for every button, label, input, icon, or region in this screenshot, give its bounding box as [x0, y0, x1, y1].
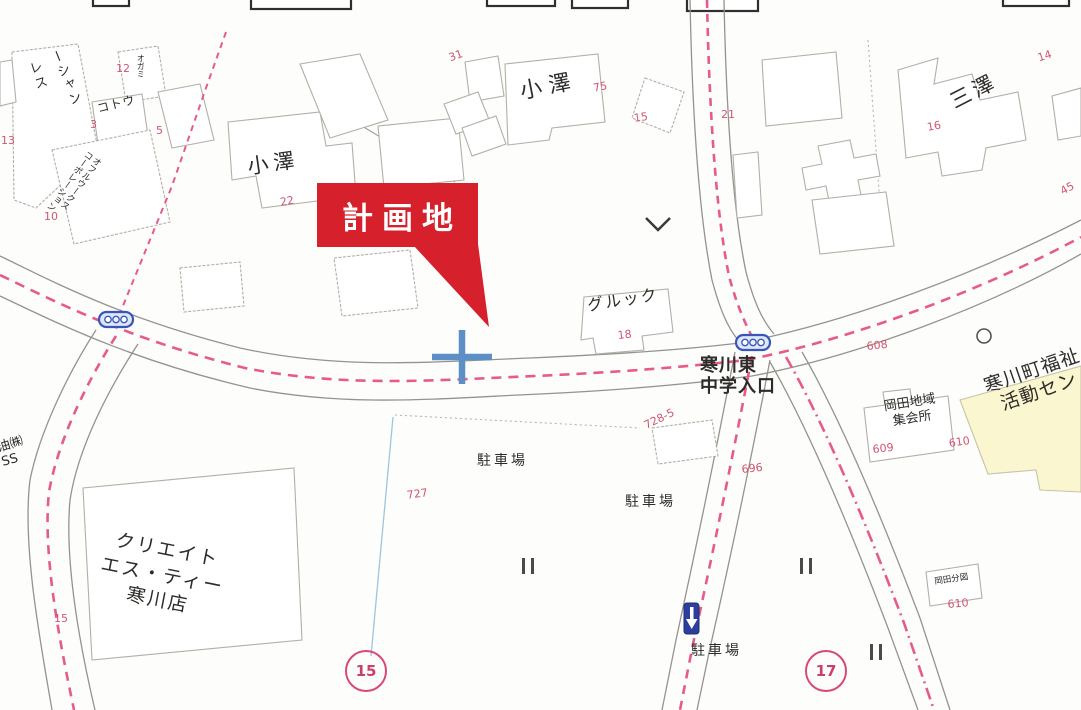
- planned-site-callout: 計画地: [317, 183, 478, 247]
- building-outline: [812, 192, 894, 254]
- well-marker-icon: [977, 329, 991, 343]
- double-bar-symbol: [798, 558, 814, 574]
- parcel-number: 5: [156, 124, 163, 137]
- building-outline: [378, 118, 464, 188]
- parking-label: 駐車場: [625, 494, 676, 510]
- parking-label: 駐車場: [691, 643, 742, 659]
- parcel-number: 10: [44, 210, 58, 223]
- double-bar-symbol: [868, 644, 884, 660]
- road-edge: [0, 254, 1081, 400]
- road-centerline: [0, 237, 1081, 381]
- cutoff-buildings-top: [93, 0, 1069, 11]
- building-outline: [180, 262, 244, 312]
- parcel-number: 16: [926, 119, 942, 134]
- route-number-badge: 17: [805, 650, 847, 692]
- traffic-signal-icon: [736, 335, 770, 350]
- building-outline: [652, 420, 718, 464]
- parcel-number: 15: [54, 612, 68, 625]
- parcel-number: 696: [741, 461, 763, 476]
- callout-tail: [414, 244, 489, 327]
- parcel-number: 22: [279, 194, 295, 209]
- planned-site-callout-label: 計画地: [342, 193, 462, 238]
- map-canvas: 小澤 小澤 三澤 グルック 寒川東 中学入口 クリエイト エス・ティー 寒川店 …: [0, 0, 1081, 710]
- building-outline: [762, 52, 842, 126]
- parcel-number: 13: [1, 134, 15, 147]
- building-outline: [898, 58, 1026, 176]
- double-bar-symbol: [520, 558, 536, 574]
- water-line: [371, 417, 393, 656]
- parcel-number: 3: [90, 118, 97, 131]
- parcel-number: 15: [633, 110, 649, 125]
- parcel-number: 12: [116, 62, 130, 75]
- building-outline: [334, 250, 418, 316]
- parcel-number: 18: [617, 328, 632, 342]
- place-label-small: オガミ: [136, 54, 145, 78]
- building-outline: [1052, 88, 1081, 140]
- route-number-badge: 15: [345, 650, 387, 692]
- roadside-arrow-marker: [684, 603, 699, 634]
- building-outline: [158, 84, 214, 148]
- parcel-number: 610: [947, 596, 969, 611]
- building-outline: [733, 152, 762, 218]
- intersection-label-samukawa-higashi: 寒川東 中学入口: [700, 356, 776, 397]
- road-edge: [0, 220, 1081, 363]
- building-outline: [632, 78, 684, 133]
- parking-label: 駐車場: [477, 453, 528, 469]
- parcel-number: 609: [872, 441, 894, 456]
- parcel-number: 21: [721, 108, 735, 121]
- chevron-symbol: [646, 218, 670, 230]
- survey-cross-marker: [432, 330, 492, 384]
- traffic-signal-icon: [99, 312, 133, 327]
- building-outline: [505, 54, 605, 145]
- parcel-number: 608: [866, 338, 888, 353]
